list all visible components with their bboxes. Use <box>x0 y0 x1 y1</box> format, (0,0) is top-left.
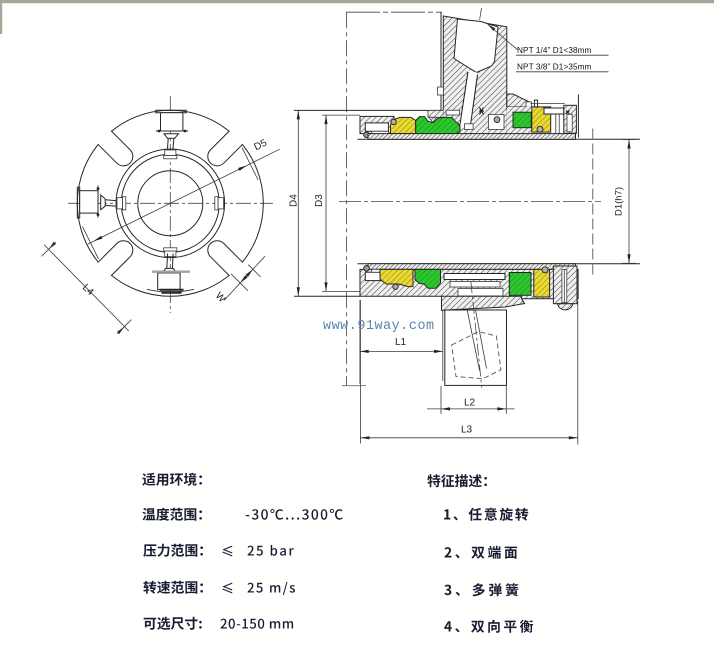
svg-text:L2: L2 <box>464 398 476 409</box>
svg-text:D3: D3 <box>314 194 325 207</box>
svg-text:L1: L1 <box>395 337 407 348</box>
svg-text:D1(h7): D1(h7) <box>614 187 625 216</box>
svg-text:D4: D4 <box>289 194 300 207</box>
svg-text:NPT 3/8” D1>35mm: NPT 3/8” D1>35mm <box>517 63 592 72</box>
svg-text:L3: L3 <box>461 425 473 436</box>
svg-text:NPT 1/4” D1<38mm: NPT 1/4” D1<38mm <box>517 46 592 55</box>
svg-text:www.91way.com: www.91way.com <box>323 319 435 334</box>
